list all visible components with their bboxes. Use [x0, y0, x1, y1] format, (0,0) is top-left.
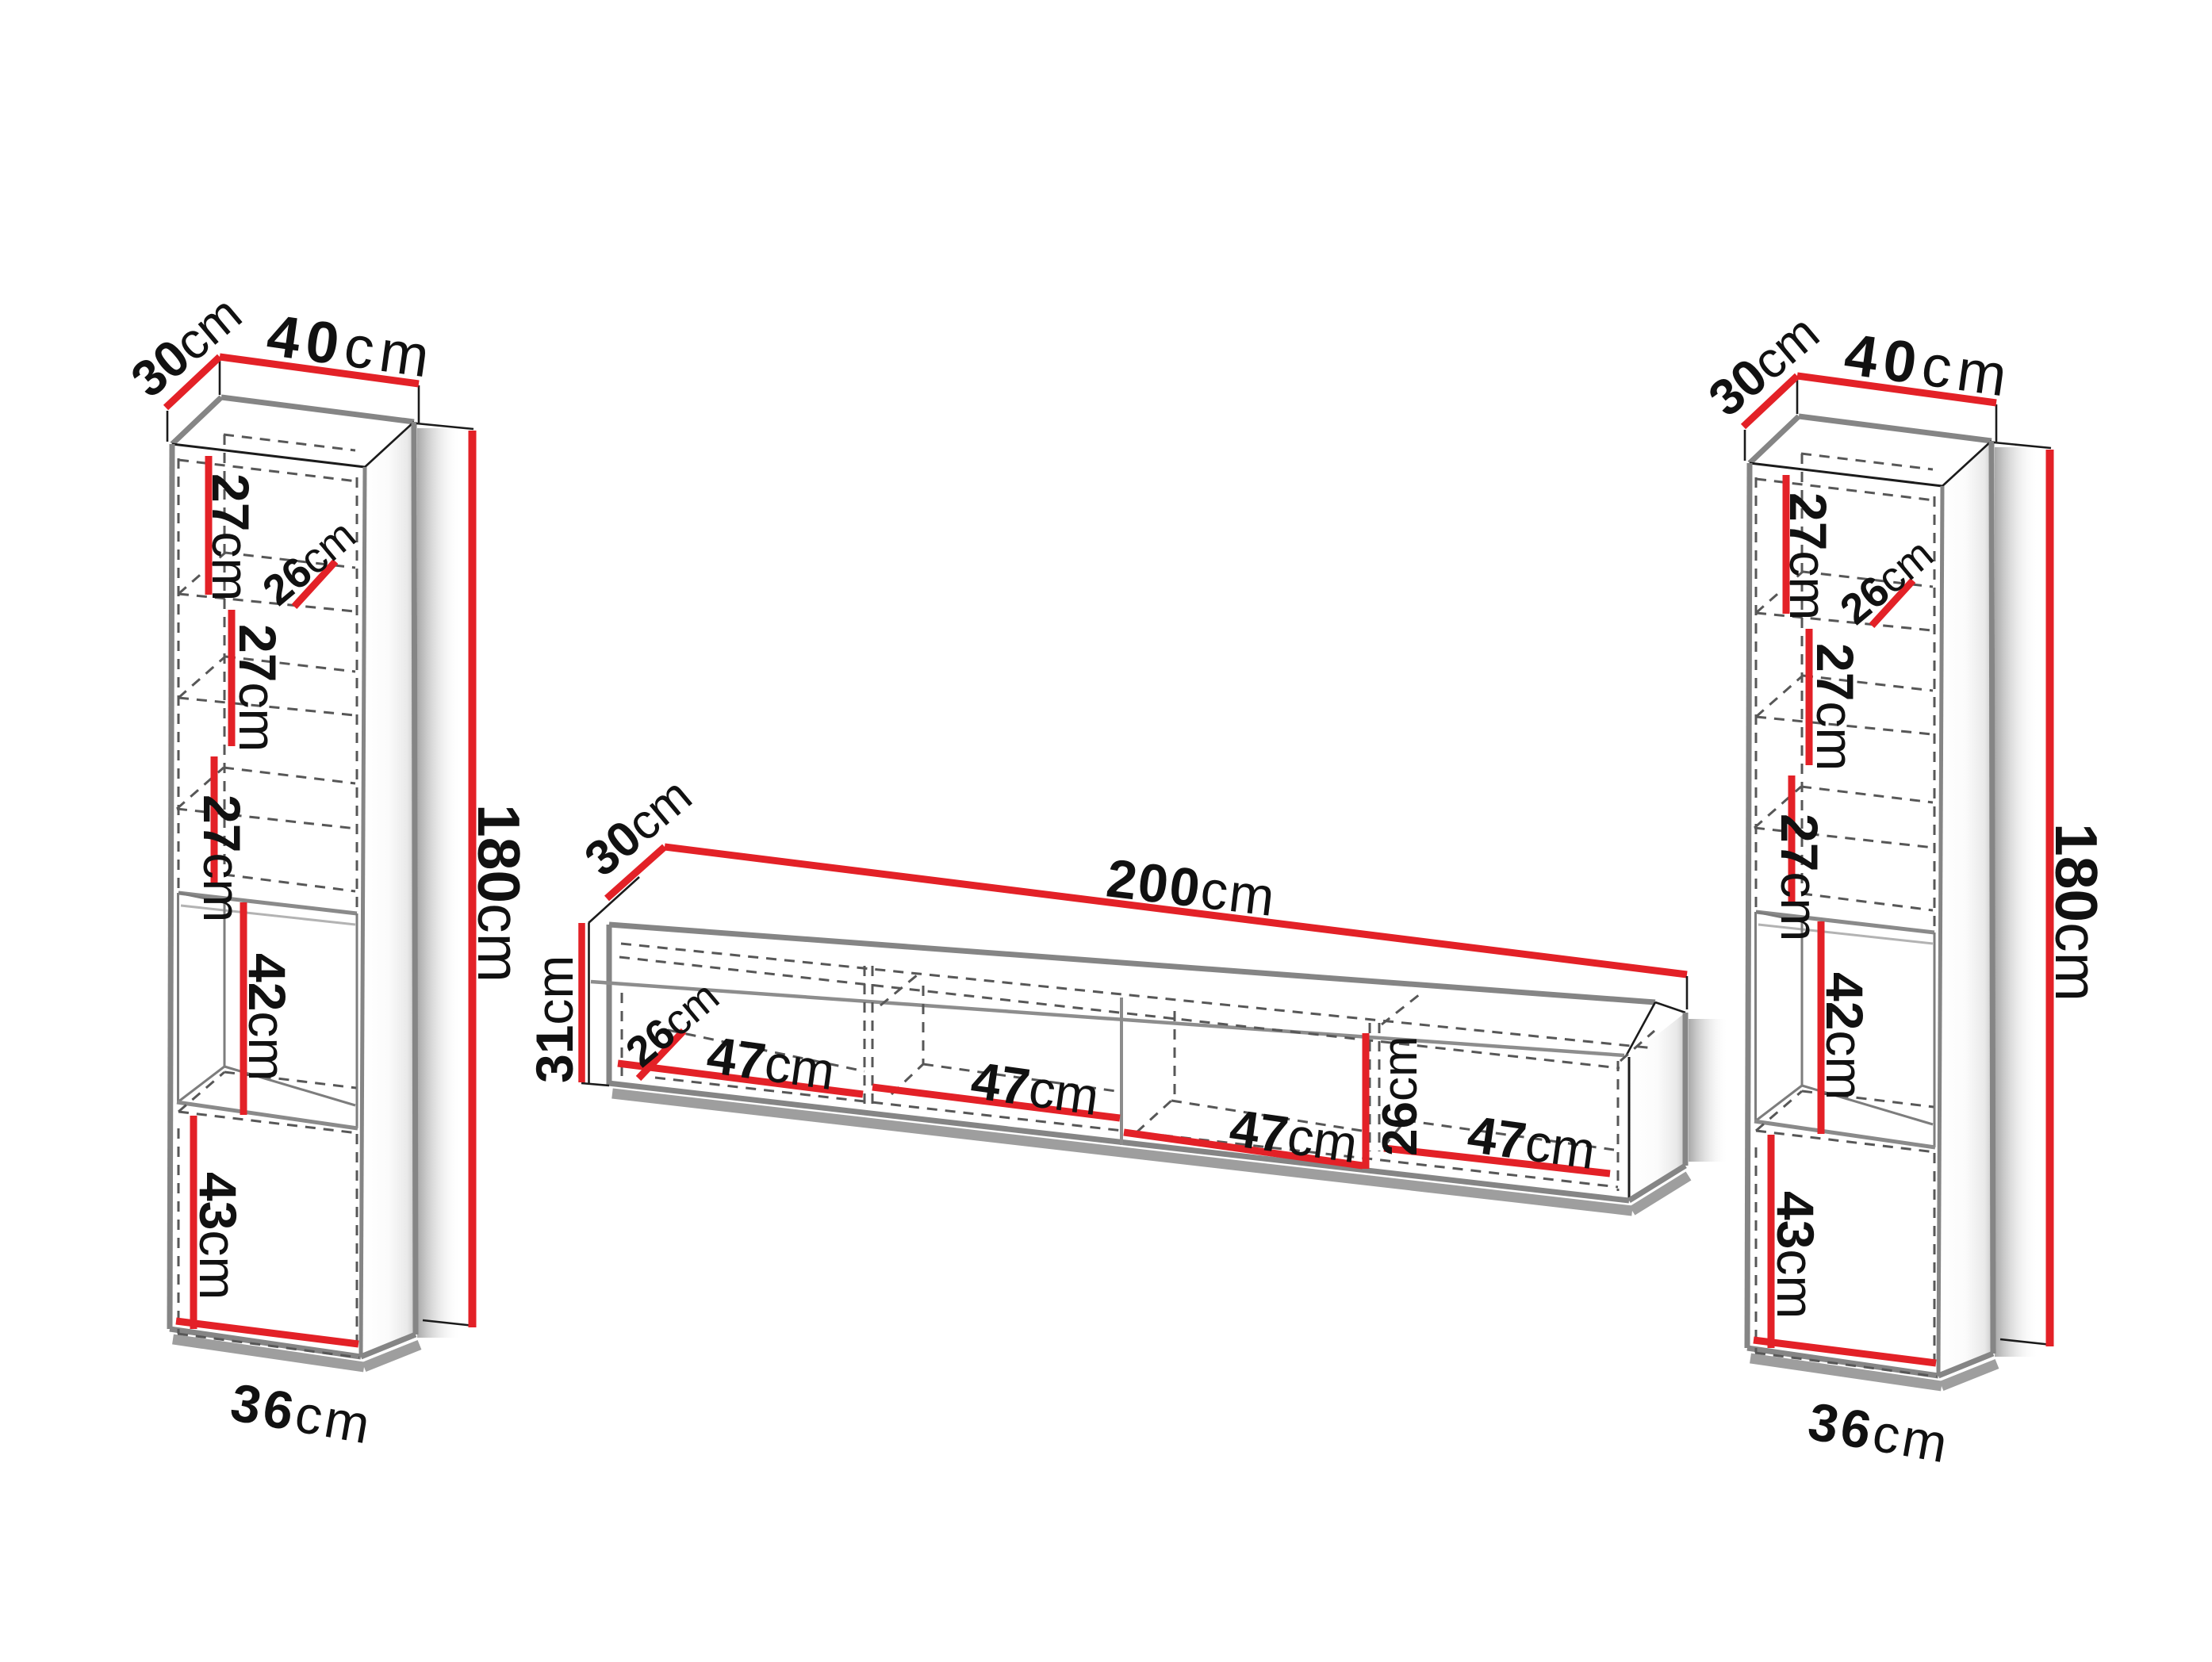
svg-text:31cm: 31cm: [525, 955, 584, 1083]
svg-text:180cm: 180cm: [466, 804, 532, 982]
svg-text:26cm: 26cm: [1373, 1036, 1428, 1156]
svg-text:42cm: 42cm: [238, 953, 297, 1081]
svg-text:43cm: 43cm: [189, 1172, 247, 1300]
svg-text:27cm: 27cm: [228, 624, 287, 752]
svg-text:27cm: 27cm: [201, 473, 260, 601]
svg-text:27cm: 27cm: [193, 795, 251, 922]
